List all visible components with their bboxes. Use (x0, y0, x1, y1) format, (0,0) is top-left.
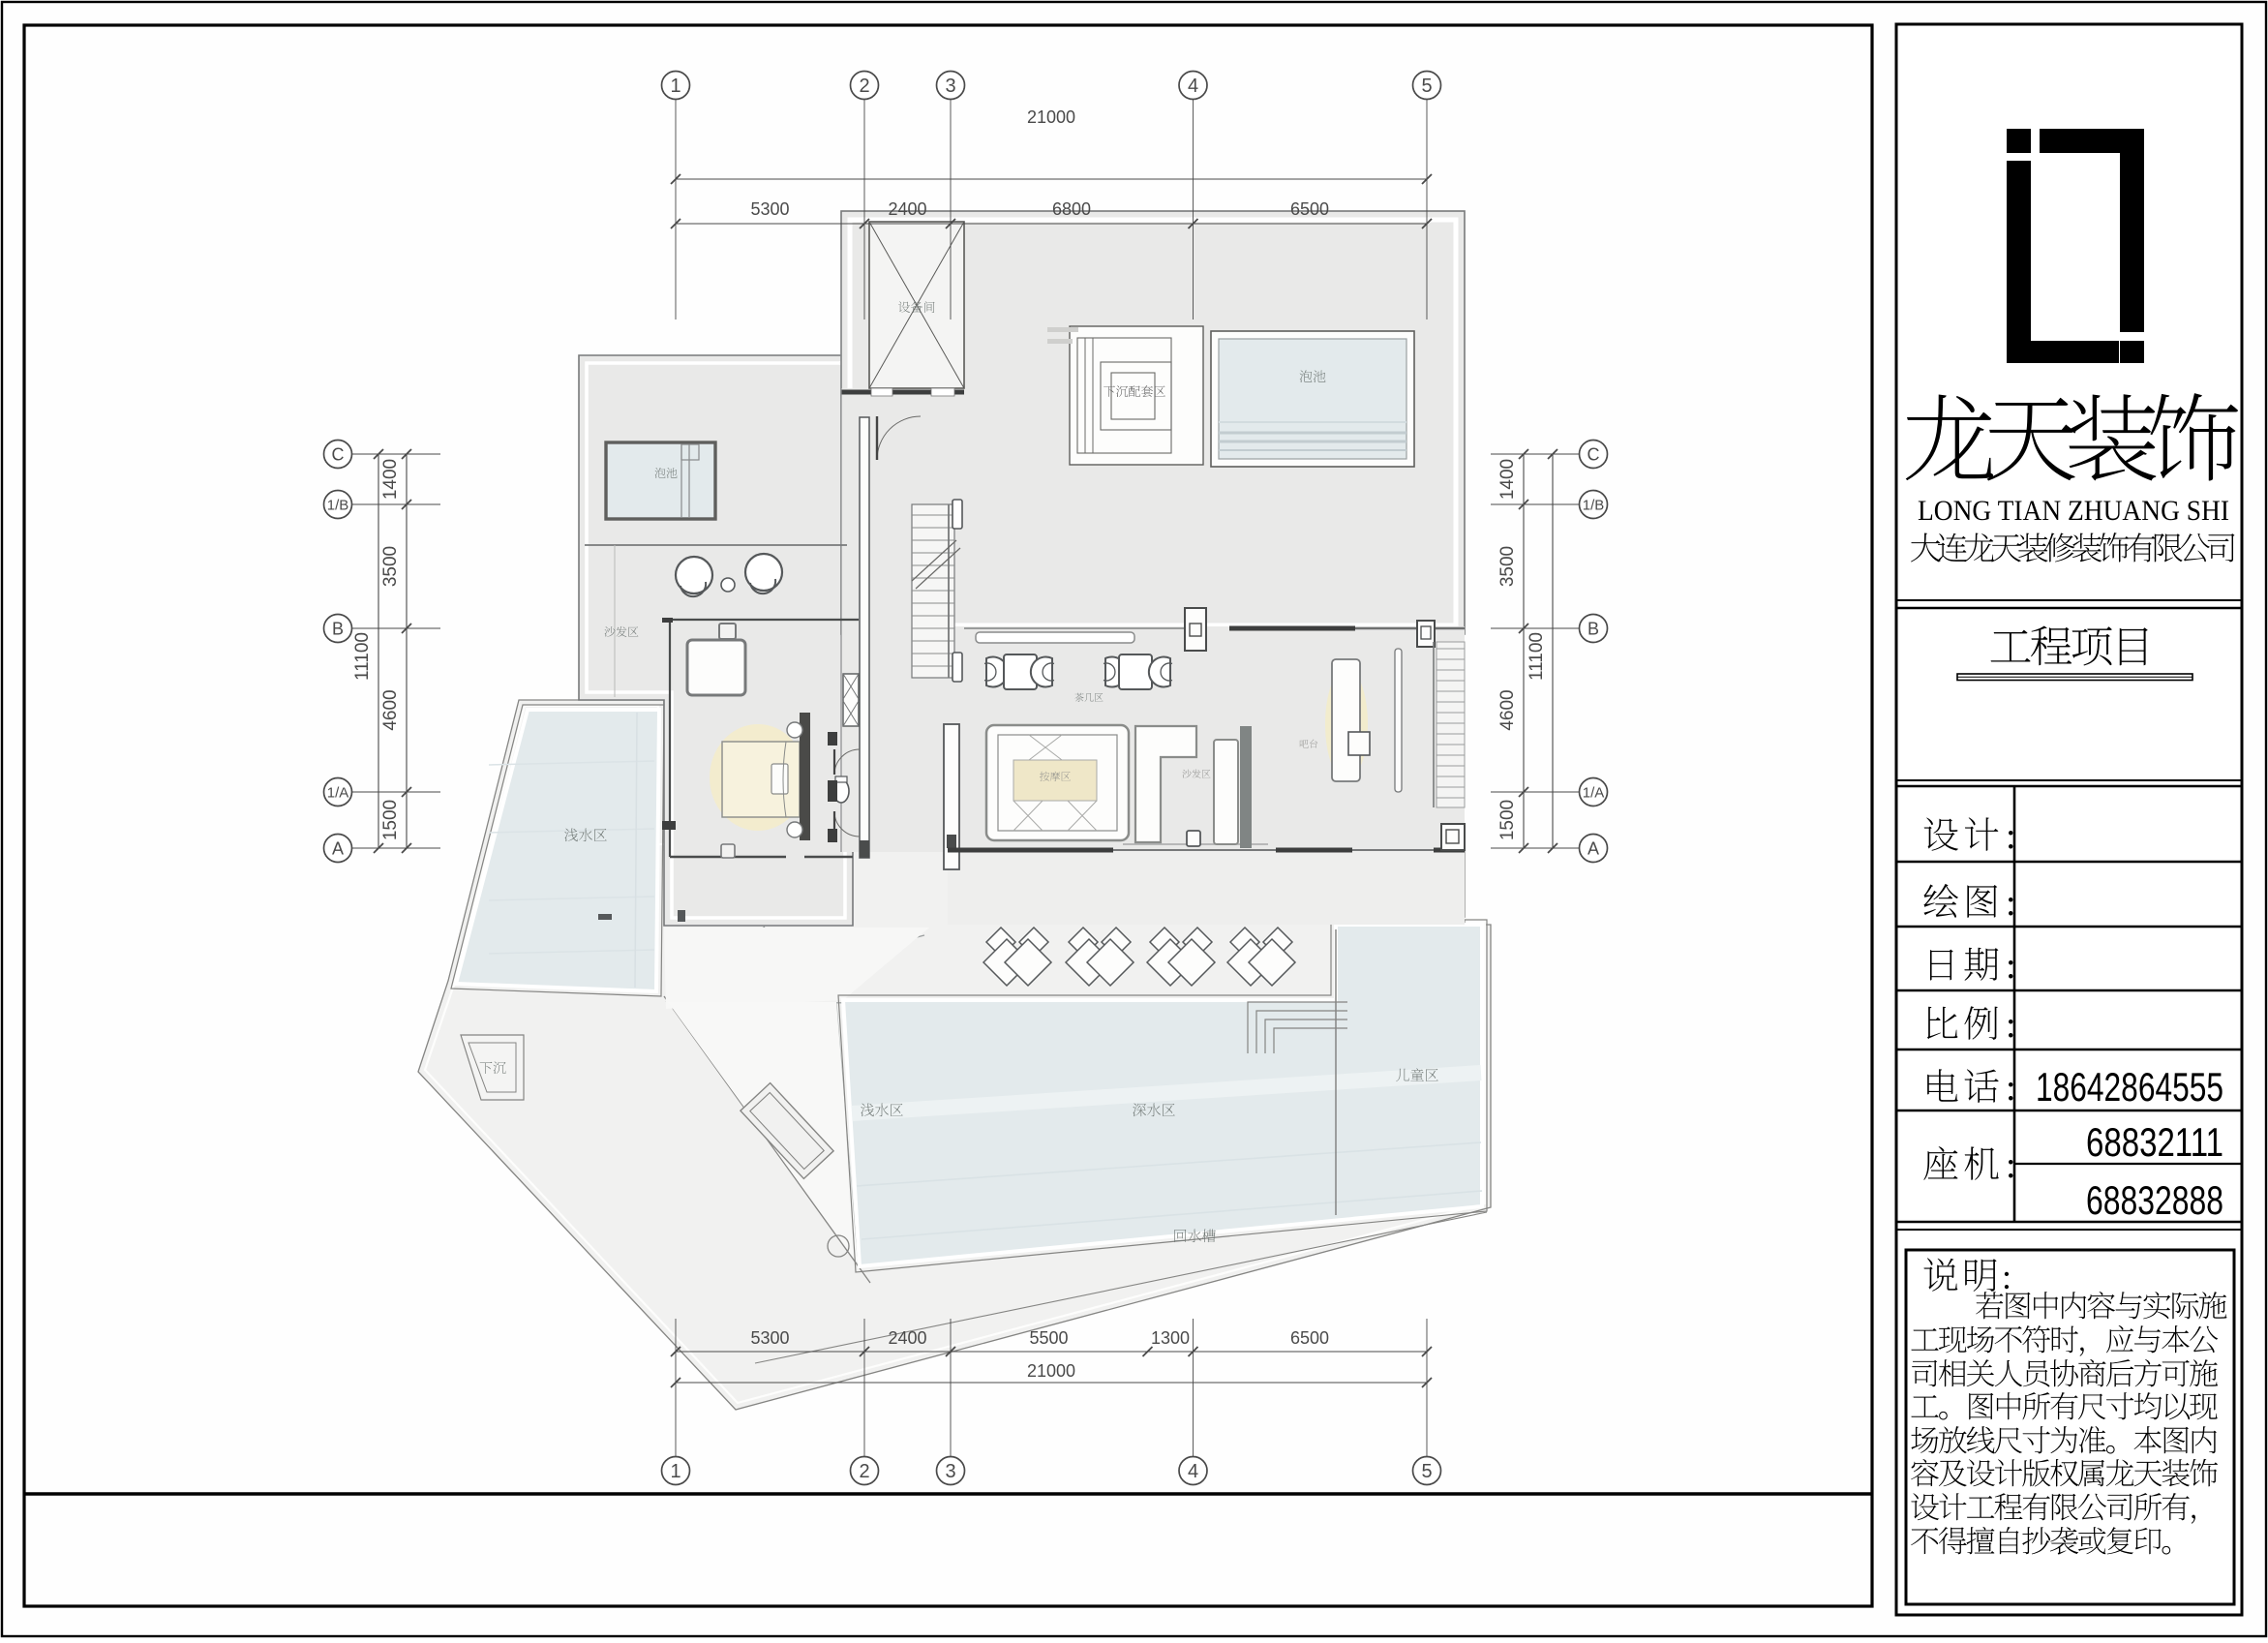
svg-text:18642864555: 18642864555 (2036, 1064, 2223, 1110)
svg-text::: : (2006, 946, 2016, 987)
svg-text::: : (2006, 1005, 2016, 1046)
svg-text:B: B (1588, 620, 1599, 639)
svg-text:1: 1 (670, 76, 680, 97)
svg-text:1: 1 (670, 1461, 680, 1482)
svg-text:1/A: 1/A (1583, 784, 1605, 801)
svg-text:1/A: 1/A (327, 784, 349, 801)
svg-text:68832888: 68832888 (2086, 1177, 2223, 1223)
svg-text:C: C (1588, 445, 1600, 465)
svg-text:LONG TIAN ZHUANG SHI: LONG TIAN ZHUANG SHI (1918, 495, 2229, 527)
svg-text:11100: 11100 (1527, 632, 1547, 681)
svg-text:A: A (1588, 839, 1599, 859)
svg-text:1/B: 1/B (327, 497, 349, 513)
svg-text:3500: 3500 (380, 546, 401, 587)
svg-text:6500: 6500 (1290, 1328, 1329, 1348)
svg-text:A: A (332, 839, 344, 859)
svg-text:C: C (332, 445, 345, 465)
svg-text::: : (2006, 1068, 2016, 1109)
svg-text:4600: 4600 (380, 689, 401, 730)
svg-text:1400: 1400 (1497, 459, 1518, 500)
svg-text:3: 3 (945, 1461, 955, 1482)
svg-text:4: 4 (1188, 1461, 1198, 1482)
svg-text:2400: 2400 (888, 199, 926, 219)
svg-text:11100: 11100 (352, 632, 373, 681)
svg-text:21000: 21000 (1027, 107, 1075, 127)
svg-text:1500: 1500 (1497, 800, 1518, 840)
svg-text::: : (2006, 1145, 2016, 1186)
svg-text:1/B: 1/B (1583, 497, 1605, 513)
svg-text:6500: 6500 (1290, 199, 1329, 219)
svg-text:21000: 21000 (1027, 1361, 1075, 1381)
svg-text:4: 4 (1188, 76, 1198, 97)
svg-text:6800: 6800 (1052, 199, 1091, 219)
svg-text::: : (2006, 816, 2016, 857)
svg-text:5: 5 (1421, 76, 1432, 97)
svg-text:3: 3 (945, 76, 955, 97)
svg-text:3500: 3500 (1497, 546, 1518, 587)
svg-text:5: 5 (1421, 1461, 1432, 1482)
svg-text:5300: 5300 (750, 199, 789, 219)
svg-text:1400: 1400 (380, 459, 401, 500)
svg-text:5500: 5500 (1029, 1328, 1068, 1348)
svg-text:2: 2 (859, 76, 869, 97)
svg-text:2400: 2400 (888, 1328, 926, 1348)
svg-text:1500: 1500 (380, 800, 401, 840)
svg-text:2: 2 (859, 1461, 869, 1482)
svg-text:4600: 4600 (1497, 689, 1518, 730)
svg-text::: : (2002, 1258, 2011, 1296)
svg-text:1300: 1300 (1151, 1328, 1190, 1348)
svg-text:5300: 5300 (750, 1328, 789, 1348)
svg-text::: : (2006, 883, 2016, 924)
svg-text:B: B (332, 620, 344, 639)
svg-text:68832111: 68832111 (2086, 1119, 2223, 1165)
